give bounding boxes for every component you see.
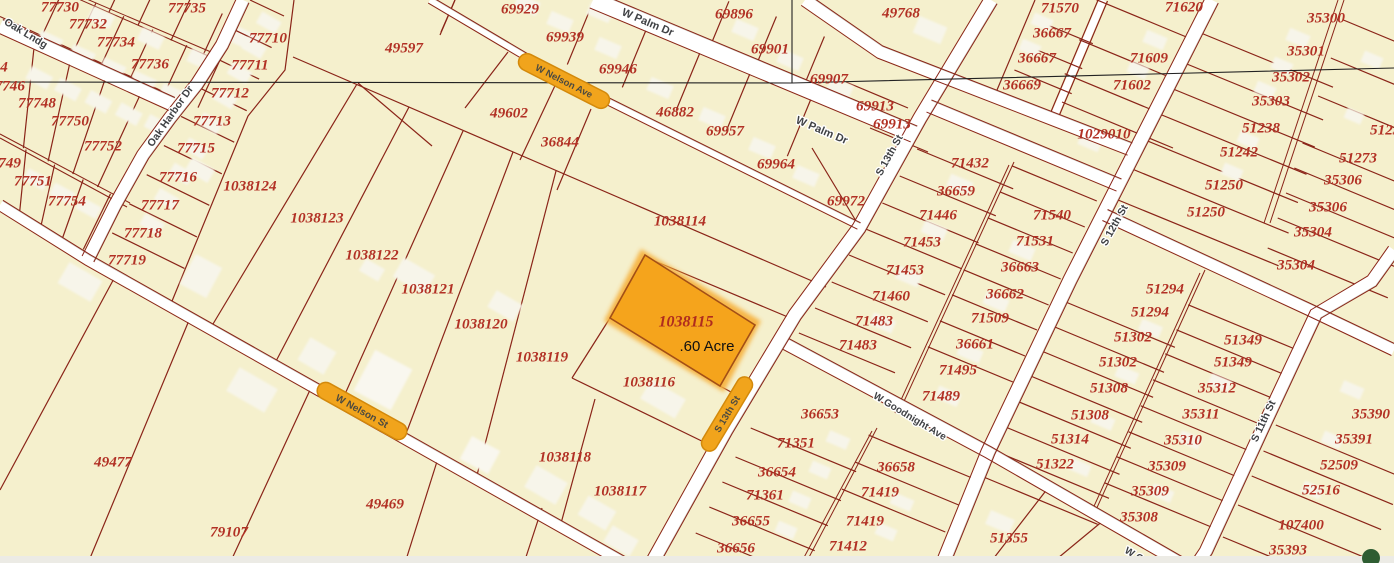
svg-text:51302: 51302 [1099,353,1137,370]
svg-text:35304: 35304 [1276,256,1315,273]
svg-text:1038119: 1038119 [516,348,569,365]
svg-text:1038120: 1038120 [454,315,508,332]
svg-text:35391: 35391 [1334,430,1373,447]
svg-text:69929: 69929 [501,0,539,17]
svg-text:71453: 71453 [903,233,941,250]
svg-text:71609: 71609 [1130,49,1168,66]
svg-text:35309: 35309 [1147,457,1186,474]
svg-text:77736: 77736 [131,55,169,72]
svg-text:1038116: 1038116 [623,373,676,390]
svg-text:71351: 71351 [777,434,815,451]
svg-text:77732: 77732 [69,15,107,32]
svg-text:71483: 71483 [839,336,877,353]
svg-text:71453: 71453 [886,261,924,278]
svg-text:51250: 51250 [1187,203,1225,220]
svg-text:1038114: 1038114 [654,212,707,229]
svg-text:49477: 49477 [93,453,133,470]
svg-text:1038121: 1038121 [401,280,454,297]
svg-text:51273: 51273 [1339,149,1377,166]
svg-text:51349: 51349 [1224,331,1262,348]
svg-text:71570: 71570 [1041,0,1079,16]
svg-text:35393: 35393 [1268,541,1307,558]
svg-text:77754: 77754 [48,192,86,209]
svg-text:4: 4 [0,58,8,75]
svg-text:71602: 71602 [1113,76,1151,93]
svg-text:71620: 71620 [1165,0,1203,15]
svg-text:77748: 77748 [18,94,56,111]
svg-text:1038123: 1038123 [290,209,344,226]
svg-text:69972: 69972 [827,192,865,209]
svg-text:51302: 51302 [1114,328,1152,345]
svg-text:77711: 77711 [231,56,268,73]
svg-text:77716: 77716 [159,168,197,185]
svg-text:71489: 71489 [922,387,960,404]
svg-text:69913: 69913 [856,97,894,114]
svg-text:36844: 36844 [540,133,579,150]
svg-text:69896: 69896 [715,5,753,22]
svg-text:1038118: 1038118 [539,448,592,465]
svg-text:77713: 77713 [193,112,231,129]
svg-text:71495: 71495 [939,361,977,378]
svg-text:35300: 35300 [1306,9,1345,26]
svg-text:35306: 35306 [1308,198,1347,215]
svg-text:1038117: 1038117 [594,482,648,499]
svg-text:69964: 69964 [757,155,795,172]
svg-text:69939: 69939 [546,28,584,45]
svg-text:51294: 51294 [1131,303,1169,320]
svg-text:46882: 46882 [655,103,694,120]
svg-text:77730: 77730 [41,0,79,15]
svg-text:51308: 51308 [1090,379,1128,396]
svg-text:71419: 71419 [861,483,899,500]
svg-text:51238: 51238 [1242,119,1280,136]
svg-text:49602: 49602 [489,104,528,121]
svg-text:71509: 71509 [971,309,1009,326]
svg-text:77750: 77750 [51,112,89,129]
svg-text:35301: 35301 [1286,42,1325,59]
svg-text:1038124: 1038124 [223,177,277,194]
svg-text:36667: 36667 [1032,24,1072,41]
svg-text:36663: 36663 [1000,258,1039,275]
svg-text:36658: 36658 [876,458,915,475]
svg-text:51355: 51355 [990,529,1028,546]
svg-text:36654: 36654 [757,463,796,480]
svg-text:35309: 35309 [1130,482,1169,499]
svg-text:49768: 49768 [881,4,920,21]
svg-text:69901: 69901 [751,40,789,57]
svg-text:35390: 35390 [1351,405,1390,422]
svg-text:77719: 77719 [108,251,146,268]
svg-text:71419: 71419 [846,512,884,529]
svg-text:79107: 79107 [210,523,249,540]
svg-text:71446: 71446 [919,206,957,223]
svg-text:77735: 77735 [168,0,206,16]
svg-text:36655: 36655 [731,512,770,529]
svg-text:51314: 51314 [1051,430,1089,447]
svg-text:51322: 51322 [1036,455,1074,472]
svg-text:36659: 36659 [936,182,975,199]
svg-text:35306: 35306 [1323,171,1362,188]
svg-text:51294: 51294 [1146,280,1184,297]
svg-text:.60 Acre: .60 Acre [679,338,734,355]
svg-text:71540: 71540 [1033,206,1071,223]
svg-text:77751: 77751 [14,172,52,189]
svg-text:35311: 35311 [1181,405,1219,422]
svg-text:51250: 51250 [1205,176,1243,193]
svg-text:1038122: 1038122 [345,246,399,263]
svg-text:77749: 77749 [0,154,21,171]
svg-text:1029010: 1029010 [1077,125,1131,142]
svg-text:35304: 35304 [1293,223,1332,240]
svg-text:69913: 69913 [873,115,911,132]
svg-text:107400: 107400 [1278,516,1324,533]
svg-text:52509: 52509 [1320,456,1358,473]
svg-text:77712: 77712 [211,84,249,101]
svg-text:69907: 69907 [810,70,849,87]
svg-text:36662: 36662 [985,285,1024,302]
svg-text:71361: 71361 [746,486,784,503]
svg-text:69946: 69946 [599,60,637,77]
svg-text:35308: 35308 [1119,508,1158,525]
svg-text:36669: 36669 [1002,76,1041,93]
svg-text:71432: 71432 [951,154,989,171]
svg-text:71483: 71483 [855,312,893,329]
svg-text:77718: 77718 [124,224,162,241]
svg-text:69957: 69957 [706,122,745,139]
svg-text:52516: 52516 [1302,481,1340,498]
svg-text:36667: 36667 [1017,49,1057,66]
svg-text:51308: 51308 [1071,406,1109,423]
svg-text:49469: 49469 [365,495,404,512]
svg-text:36656: 36656 [716,539,755,556]
svg-text:35312: 35312 [1197,379,1236,396]
svg-text:36661: 36661 [955,335,994,352]
svg-text:77752: 77752 [84,137,122,154]
svg-text:71412: 71412 [829,537,867,554]
svg-text:1038115: 1038115 [658,314,713,331]
svg-text:51238: 51238 [1370,121,1394,138]
svg-text:51349: 51349 [1214,353,1252,370]
svg-text:71531: 71531 [1016,232,1054,249]
svg-text:77717: 77717 [141,196,180,213]
svg-text:35302: 35302 [1271,68,1310,85]
svg-text:49597: 49597 [384,39,424,56]
svg-text:77710: 77710 [249,29,287,46]
svg-text:35303: 35303 [1251,92,1290,109]
svg-text:71460: 71460 [872,287,910,304]
svg-text:35310: 35310 [1163,431,1202,448]
svg-text:77715: 77715 [177,139,215,156]
svg-text:77746: 77746 [0,77,25,94]
svg-text:36653: 36653 [800,405,839,422]
svg-text:51242: 51242 [1220,143,1258,160]
svg-text:77734: 77734 [97,33,135,50]
